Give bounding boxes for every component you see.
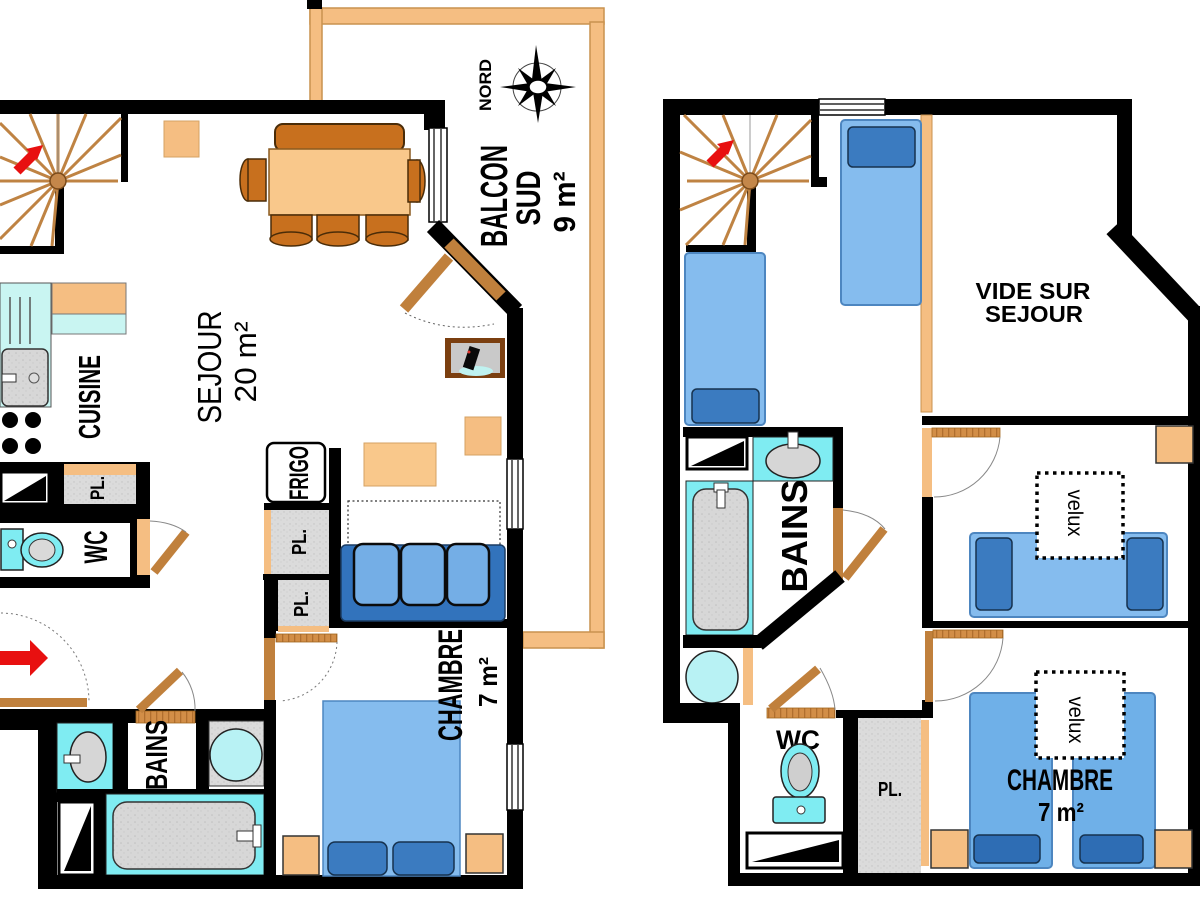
svg-text:CHAMBRE: CHAMBRE [432, 629, 470, 741]
svg-text:20 m²: 20 m² [228, 322, 263, 403]
svg-text:PL.: PL. [289, 529, 311, 555]
svg-text:PL.: PL. [878, 779, 902, 801]
svg-text:SEJOUR: SEJOUR [191, 311, 228, 424]
svg-text:PL.: PL. [291, 591, 313, 617]
svg-text:SEJOUR: SEJOUR [985, 301, 1083, 327]
svg-text:BAINS: BAINS [774, 480, 815, 593]
svg-text:velux: velux [1064, 697, 1087, 744]
svg-text:WC: WC [78, 531, 114, 564]
svg-text:velux: velux [1063, 490, 1086, 537]
svg-text:9 m²: 9 m² [547, 172, 582, 233]
svg-text:SUD: SUD [510, 171, 548, 226]
svg-text:FRIGO: FRIGO [284, 446, 314, 500]
svg-text:7 m²: 7 m² [473, 657, 503, 707]
svg-text:BAINS: BAINS [139, 720, 174, 790]
svg-text:CUISINE: CUISINE [72, 355, 107, 439]
svg-text:CHAMBRE: CHAMBRE [1007, 764, 1113, 797]
svg-text:NORD: NORD [476, 59, 495, 111]
svg-text:PL.: PL. [88, 476, 109, 500]
svg-text:7 m²: 7 m² [1038, 797, 1084, 827]
